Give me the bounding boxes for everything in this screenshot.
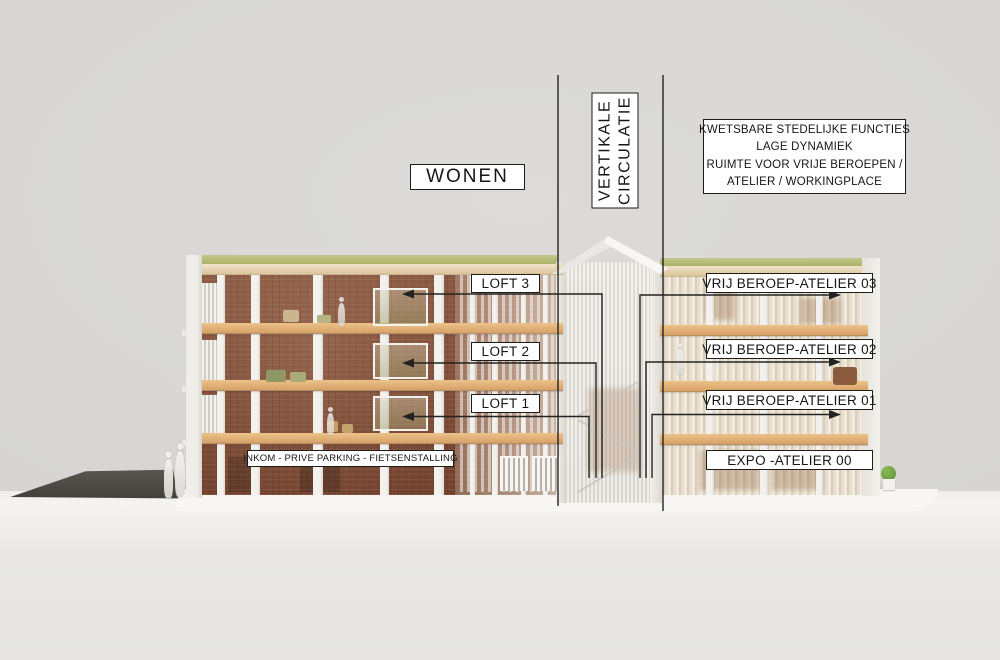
floor-slab (660, 434, 868, 445)
vertical-circulation-label: VERTIKALE CIRCULATIE (592, 93, 639, 209)
loft3-label: LOFT 3 (471, 274, 540, 293)
loft-entry-glazing (373, 343, 428, 379)
note-line: RUIMTE VOOR VRIJE BEROEPEN / (706, 157, 902, 175)
stair-interior-tint (588, 388, 640, 472)
wonen-label: WONEN (410, 164, 525, 190)
white-planter (883, 479, 895, 490)
furniture-chair (342, 424, 353, 433)
floor-slab (660, 325, 868, 336)
loft-entry-glazing (373, 288, 428, 326)
floor-slab (202, 433, 563, 444)
fragile-functions-note: KWETSBARE STEDELIJKE FUNCTIES LAGE DYNAM… (703, 119, 906, 194)
scale-figure (175, 443, 185, 497)
atelier3-label: VRIJ BEROEP-ATELIER 03 (706, 273, 873, 293)
note-line: LAGE DYNAMIEK (756, 139, 853, 157)
scale-figure (676, 343, 684, 375)
atelier2-label: VRIJ BEROEP-ATELIER 02 (706, 339, 873, 359)
furniture-sofa (266, 370, 286, 382)
loft1-label: LOFT 1 (471, 394, 540, 413)
atelier1-label: VRIJ BEROEP-ATELIER 01 (706, 390, 873, 410)
table-surface (0, 491, 1000, 660)
bike-fence (500, 456, 528, 491)
slab-nub (182, 386, 187, 392)
loft2-label: LOFT 2 (471, 342, 540, 361)
vertical-circulation-line1: VERTIKALE (595, 100, 615, 201)
expo-label: EXPO -ATELIER 00 (706, 450, 873, 470)
scale-figure (164, 451, 173, 498)
furniture-armchair (833, 367, 857, 385)
wonen-label-text: WONEN (426, 166, 509, 188)
ground-floor-label: INKOM - PRIVE PARKING - FIETSENSTALLING (247, 450, 454, 467)
vertical-circulation-line2: CIRCULATIE (615, 96, 635, 205)
presentation-slide: WONEN VERTIKALE CIRCULATIE KWETSBARE STE… (0, 0, 1000, 660)
note-line: ATELIER / WORKINGPLACE (727, 174, 882, 192)
balcony-slats (202, 395, 217, 433)
scale-figure (327, 407, 334, 435)
dark-ramp (5, 468, 180, 501)
slab-nub (182, 330, 187, 336)
furniture-block (283, 310, 299, 322)
note-line: KWETSBARE STEDELIJKE FUNCTIES (699, 122, 910, 140)
balcony-slats (202, 340, 217, 380)
balcony-slats (202, 283, 217, 323)
scale-figure (338, 297, 345, 326)
bike-fence (532, 456, 560, 491)
left-end-wall (186, 255, 202, 498)
floor-slab (202, 380, 563, 391)
loft-entry-glazing (373, 396, 428, 431)
furniture-sofa (290, 372, 306, 382)
furniture-block (317, 315, 331, 323)
